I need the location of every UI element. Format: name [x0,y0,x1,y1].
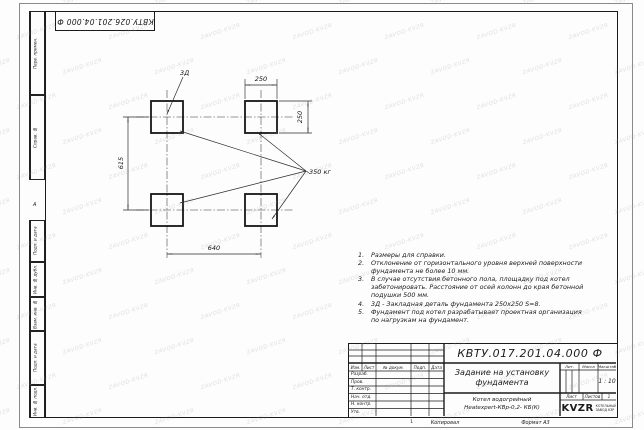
extension-lines [123,79,312,210]
col-podp: Подп. [411,363,429,371]
company-logo-area: KVZR КОТЕЛЬНЫЙ ЗАВОД КЗР [560,400,616,416]
row-n-kontr: Н. контр. [349,401,376,409]
row-t-kontr: Т. контр. [349,386,376,394]
mass-label: Масса [579,363,598,370]
company-line2: ЗАВОД КЗР [596,408,616,412]
product-name: Котел водогрейный Heatexpert-КВр-0,2- КБ… [446,393,558,416]
leader-weight-1 [180,131,306,171]
col-ndokum: № докум. [376,363,411,371]
notes-list: 1.Размеры для справки. 2.Отклонение от г… [358,251,594,324]
note-item: 3.В случае отсутствия бетонного пола, пл… [358,275,594,299]
row-utv: Утв. [349,409,376,417]
dimension-texts: 250 250 615 640 3Д 350 кг [117,69,331,252]
doc-title: Задание на установку фундамента [446,363,558,393]
note-text: В случае отсутствия бетонного пола, площ… [371,275,587,299]
note-number: 2. [358,259,371,275]
doc-number: КВТУ.017.201.04.000 Ф [444,344,616,363]
sheet-label: Лист [560,393,583,400]
dim-640-bottom: 640 [208,244,220,252]
note-item: 5.Фундамент под котел разрабатывает прое… [358,308,594,324]
embed-detail-label: 3Д [180,69,189,77]
note-number: 4. [358,300,371,308]
col-data: Дата [429,363,444,371]
note-item: 1.Размеры для справки. [358,251,594,259]
format-label: Формат А3 [498,420,573,426]
row-razrab: Разраб. [349,371,376,379]
note-number: 1. [358,251,371,259]
lit-label: Лит. [560,363,579,370]
drawing-sheet: Перв. примен. Справ. № Подп. и дата Инв.… [0,0,644,430]
leader-3d [167,77,183,114]
note-text: Отклонение от горизонтального уровня вер… [371,259,587,275]
company-name: КОТЕЛЬНЫЙ ЗАВОД КЗР [596,404,616,412]
col-izm: Изм. [349,363,362,371]
col-list: Лист [362,363,376,371]
leader-lines [167,77,309,219]
row-nach-otd: Нач. отд. [349,394,376,402]
note-text: Размеры для справки. [371,251,587,259]
centerlines [136,90,293,258]
dimension-lines [128,85,308,254]
weight-label: 350 кг [309,168,331,176]
dim-615-left: 615 [117,157,125,169]
kvzr-logo-text: KVZR [562,403,594,414]
product-line2: Heatexpert-КВр-0,2- КБ(К) [464,405,540,412]
dim-250-top: 250 [255,75,267,83]
copied-label: Копировал [405,420,485,426]
sheets-label: Листов [583,393,602,400]
title-block: Изм. Лист № докум. Подп. Дата Разраб. Пр… [348,343,618,418]
dim-250-right: 250 [296,111,304,123]
leader-weight-2 [257,132,306,171]
note-item: 4.3Д - Закладная деталь фундамента 250х2… [358,300,594,308]
note-text: 3Д - Закладная деталь фундамента 250х250… [371,300,587,308]
sheets-value: 1 [602,393,616,400]
note-text: Фундамент под котел разрабатывает проект… [371,308,587,324]
foundation-pads [151,101,277,226]
scale-value: 1 : 10 [598,370,616,393]
row-prov: Пров. [349,379,376,387]
product-line1: Котел водогрейный [473,397,532,404]
note-number: 5. [358,308,371,324]
note-number: 3. [358,275,371,299]
scale-label: Масштаб [598,363,616,370]
note-item: 2.Отклонение от горизонтального уровня в… [358,259,594,275]
